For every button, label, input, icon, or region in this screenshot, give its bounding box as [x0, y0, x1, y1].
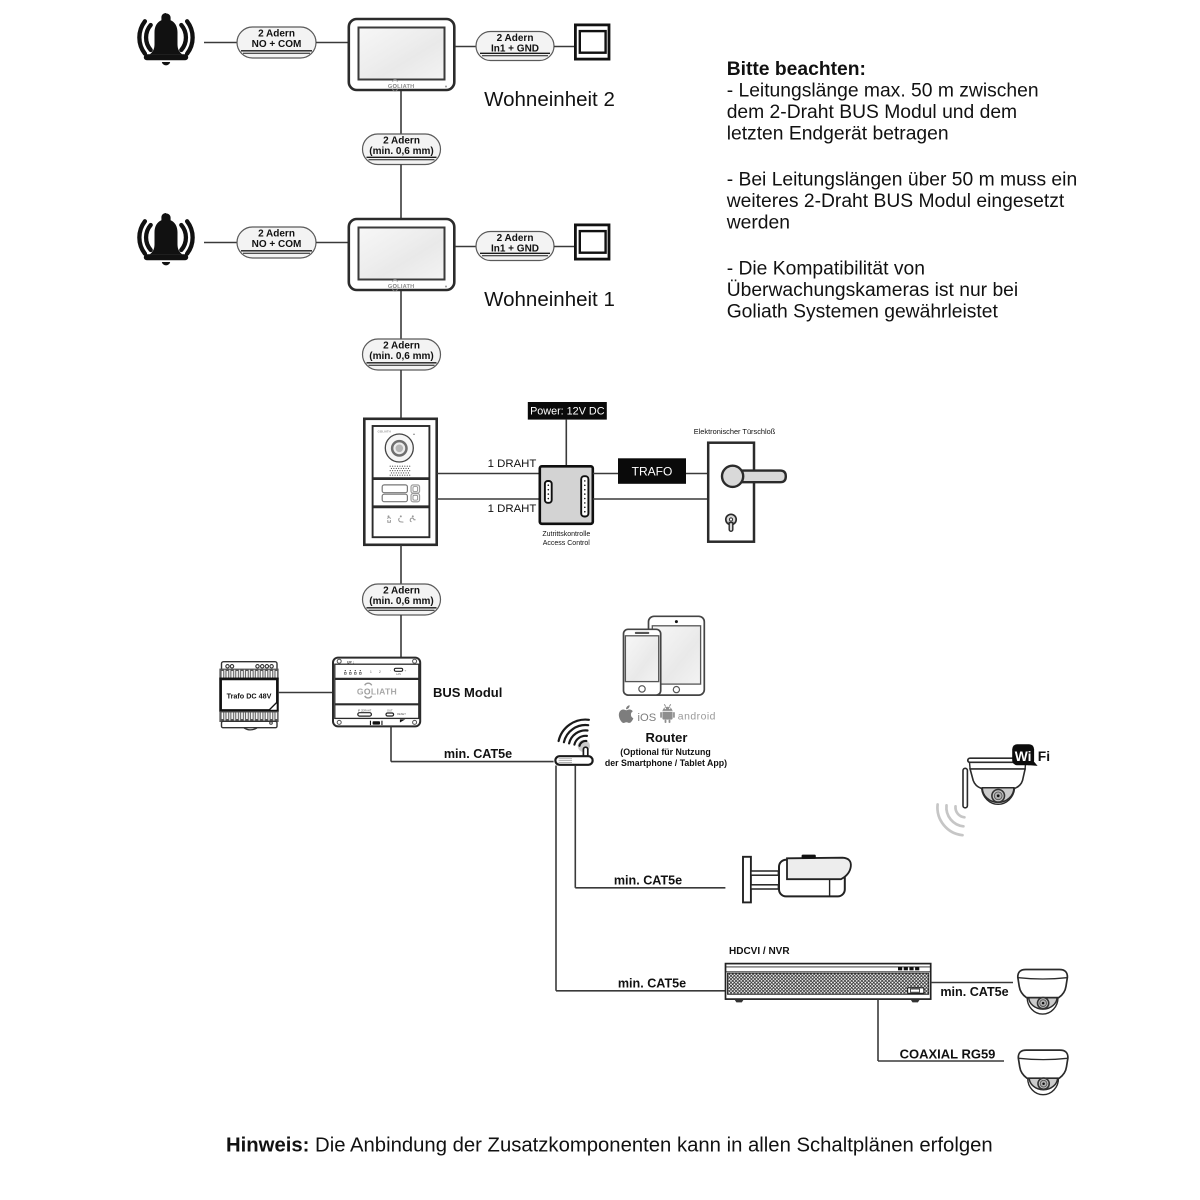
svg-text:BUS Modul: BUS Modul	[433, 685, 502, 700]
svg-text:Fi: Fi	[1038, 749, 1050, 764]
svg-text:Power: 12V DC: Power: 12V DC	[530, 406, 605, 418]
svg-text:+: +	[405, 669, 407, 673]
svg-text:NO + COM: NO + COM	[252, 39, 302, 50]
svg-text:(Optional für Nutzung: (Optional für Nutzung	[620, 747, 710, 757]
svg-text:(min. 0,6 mm): (min. 0,6 mm)	[369, 351, 433, 362]
svg-text:2 Adern: 2 Adern	[258, 29, 295, 40]
svg-text:2 Adern: 2 Adern	[497, 33, 534, 44]
svg-text:TRAFO: TRAFO	[632, 464, 673, 478]
svg-text:2 Adern: 2 Adern	[258, 229, 295, 240]
svg-text:GOLIATH: GOLIATH	[388, 84, 415, 90]
svg-text:GOLIATH: GOLIATH	[388, 284, 415, 290]
svg-text:In1 + GND: In1 + GND	[491, 44, 539, 55]
svg-text:HDCVI / NVR: HDCVI / NVR	[729, 946, 790, 957]
svg-text:2 Adern: 2 Adern	[383, 341, 420, 352]
svg-text:Access Control: Access Control	[543, 540, 591, 547]
svg-text:Zutrittskontrolle: Zutrittskontrolle	[542, 531, 590, 538]
svg-text:GOLIATH: GOLIATH	[378, 429, 391, 433]
svg-text:der Smartphone / Tablet App): der Smartphone / Tablet App)	[605, 758, 727, 768]
svg-text:Router: Router	[646, 730, 688, 745]
svg-text:Wi: Wi	[1015, 749, 1032, 764]
svg-text:Wohneinheit 2: Wohneinheit 2	[484, 88, 615, 111]
svg-text:GOLIATH: GOLIATH	[357, 687, 397, 697]
svg-text:(min. 0,6 mm): (min. 0,6 mm)	[369, 146, 433, 157]
svg-text:2: 2	[379, 670, 381, 674]
svg-text:RESET: RESET	[397, 712, 406, 716]
svg-text:min. CAT5e: min. CAT5e	[444, 747, 512, 761]
svg-text:min. CAT5e: min. CAT5e	[618, 977, 686, 991]
svg-text:In1 + GND: In1 + GND	[491, 244, 539, 255]
svg-text:Überwachungskameras ist nur be: Überwachungskameras ist nur bei	[727, 279, 1019, 301]
svg-text:- Die Kompatibilität von: - Die Kompatibilität von	[727, 259, 925, 280]
svg-text:LAN: LAN	[396, 673, 401, 676]
svg-text:dem 2-Draht BUS Modul und dem: dem 2-Draht BUS Modul und dem	[727, 102, 1017, 123]
svg-text:android: android	[678, 712, 716, 723]
svg-text:min. CAT5e: min. CAT5e	[940, 985, 1008, 999]
svg-text:iOS: iOS	[638, 712, 657, 724]
svg-text:IP 2DRAHT: IP 2DRAHT	[358, 708, 372, 712]
svg-text:Wohneinheit 1: Wohneinheit 1	[484, 288, 615, 311]
svg-text:COAXIAL RG59: COAXIAL RG59	[900, 1047, 996, 1062]
svg-text:UP ↕: UP ↕	[347, 660, 355, 664]
svg-text:OUT: OUT	[387, 708, 393, 712]
svg-text:- Bei Leitungslängen über 50 m: - Bei Leitungslängen über 50 m muss ein	[727, 170, 1077, 191]
svg-text:(min. 0,6 mm): (min. 0,6 mm)	[369, 596, 433, 607]
svg-text:- Leitungslänge max. 50 m zwis: - Leitungslänge max. 50 m zwischen	[727, 81, 1039, 102]
svg-text:Bitte beachten:: Bitte beachten:	[727, 59, 866, 80]
svg-text:min. CAT5e: min. CAT5e	[614, 874, 682, 888]
svg-text:1 DRAHT: 1 DRAHT	[488, 503, 537, 515]
svg-text:-: -	[390, 669, 391, 673]
svg-text:1 DRAHT: 1 DRAHT	[488, 458, 537, 470]
svg-text:Trafo DC 48V: Trafo DC 48V	[227, 691, 272, 700]
svg-text:Hinweis: Die Anbindung der Zus: Hinweis: Die Anbindung der Zusatzkompone…	[226, 1135, 993, 1157]
svg-text:NO + COM: NO + COM	[252, 239, 302, 250]
svg-text:1: 1	[370, 670, 372, 674]
svg-text:Elektronischer Türschloß: Elektronischer Türschloß	[694, 427, 776, 436]
svg-text:werden: werden	[726, 213, 790, 234]
svg-text:2 Adern: 2 Adern	[383, 586, 420, 597]
svg-text:weiteres 2-Draht BUS Modul ein: weiteres 2-Draht BUS Modul eingesetzt	[726, 191, 1065, 212]
svg-text:Goliath Systemen gewährleistet: Goliath Systemen gewährleistet	[727, 302, 999, 323]
svg-text:2 Adern: 2 Adern	[497, 233, 534, 244]
svg-text:letzten Endgerät betragen: letzten Endgerät betragen	[727, 124, 949, 145]
svg-text:2 Adern: 2 Adern	[383, 136, 420, 147]
